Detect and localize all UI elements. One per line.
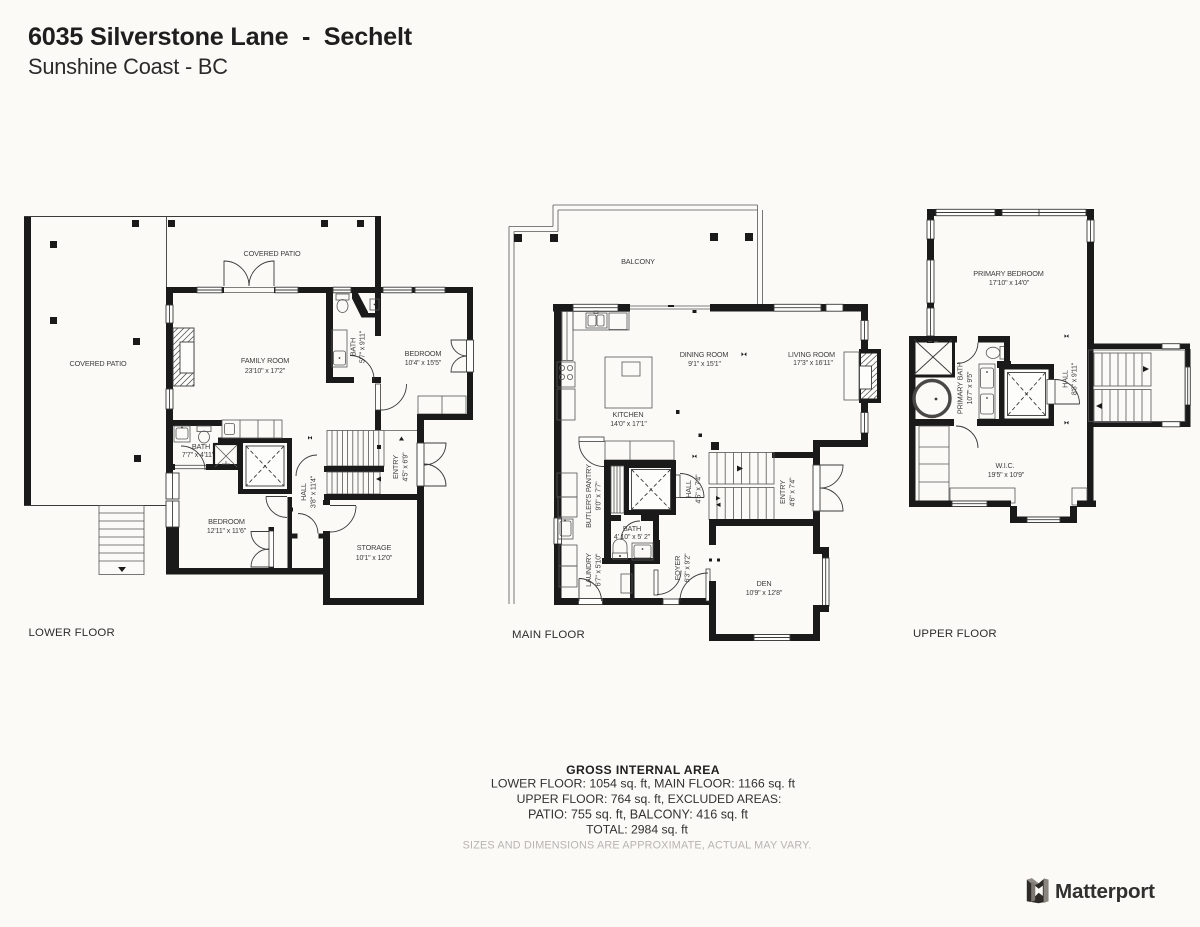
svg-text:10'1" x 12'0": 10'1" x 12'0" [356, 555, 393, 562]
svg-text:4'5" x 6'9": 4'5" x 6'9" [403, 452, 410, 482]
svg-text:BATH: BATH [623, 524, 641, 533]
svg-text:W.I.C.: W.I.C. [996, 461, 1015, 470]
svg-text:PATIO: 755 sq. ft, BALCONY: 41: PATIO: 755 sq. ft, BALCONY: 416 sq. ft [528, 808, 749, 822]
svg-text:6'7" x 5'10": 6'7" x 5'10" [596, 553, 603, 586]
svg-text:MAIN FLOOR: MAIN FLOOR [512, 629, 585, 641]
svg-text:17'3" x 16'11": 17'3" x 16'11" [793, 360, 833, 367]
svg-text:BEDROOM: BEDROOM [405, 349, 442, 358]
svg-text:Matterport: Matterport [1055, 880, 1155, 903]
svg-text:LIVING ROOM: LIVING ROOM [788, 350, 835, 359]
svg-text:PRIMARY BATH: PRIMARY BATH [956, 362, 965, 414]
svg-text:9'1" x 15'1": 9'1" x 15'1" [688, 361, 721, 368]
svg-text:9'0" x 7'7": 9'0" x 7'7" [596, 481, 603, 511]
svg-text:COVERED PATIO: COVERED PATIO [244, 249, 301, 258]
svg-text:KITCHEN: KITCHEN [613, 410, 644, 419]
svg-text:ENTRY: ENTRY [391, 455, 400, 479]
svg-text:BEDROOM: BEDROOM [208, 517, 245, 526]
svg-text:6'3" x 9'2": 6'3" x 9'2" [685, 553, 692, 583]
svg-text:GROSS INTERNAL AREA: GROSS INTERNAL AREA [566, 763, 720, 777]
svg-text:7'7" x 4'11": 7'7" x 4'11" [182, 452, 215, 459]
svg-text:23'10" x 17'2": 23'10" x 17'2" [245, 368, 286, 375]
svg-text:FAMILY ROOM: FAMILY ROOM [241, 356, 289, 365]
svg-text:6035 Silverstone Lane - Sech: 6035 Silverstone Lane - Sechelt [28, 23, 413, 51]
svg-text:8'8" x 9'11": 8'8" x 9'11" [1072, 362, 1079, 395]
svg-text:DINING ROOM: DINING ROOM [680, 350, 729, 359]
svg-text:LOWER FLOOR: 1054 sq. ft, MAIN: LOWER FLOOR: 1054 sq. ft, MAIN FLOOR: 11… [491, 777, 796, 791]
svg-text:UPPER FLOOR: 764 sq. ft, EXCLU: UPPER FLOOR: 764 sq. ft, EXCLUDED AREAS: [517, 792, 782, 806]
svg-text:LOWER FLOOR: LOWER FLOOR [29, 627, 115, 639]
svg-text:BATH: BATH [192, 442, 210, 451]
svg-text:10'4" x 15'5": 10'4" x 15'5" [405, 360, 442, 367]
svg-text:PRIMARY BEDROOM: PRIMARY BEDROOM [973, 269, 1044, 278]
svg-text:10'9" x 12'8": 10'9" x 12'8" [746, 590, 783, 597]
svg-text:HALL: HALL [299, 483, 308, 501]
svg-text:3'8" x 11'4": 3'8" x 11'4" [311, 475, 318, 508]
svg-text:STORAGE: STORAGE [357, 543, 392, 552]
svg-text:19'5" x 10'9": 19'5" x 10'9" [988, 472, 1025, 479]
svg-text:BATH: BATH [349, 338, 358, 356]
svg-text:10'7" x 9'5": 10'7" x 9'5" [967, 371, 974, 404]
svg-text:UPPER FLOOR: UPPER FLOOR [913, 628, 997, 640]
svg-text:TOTAL: 2984 sq. ft: TOTAL: 2984 sq. ft [586, 823, 688, 837]
svg-text:ENTRY: ENTRY [778, 480, 787, 504]
svg-text:4'6" x 7'4": 4'6" x 7'4" [790, 477, 797, 507]
svg-text:DEN: DEN [757, 579, 772, 588]
svg-text:BUTLER'S PANTRY: BUTLER'S PANTRY [584, 464, 593, 528]
svg-text:SIZES AND DIMENSIONS ARE APPRO: SIZES AND DIMENSIONS ARE APPROXIMATE, AC… [463, 840, 812, 852]
svg-text:COVERED PATIO: COVERED PATIO [70, 359, 127, 368]
svg-text:14'0" x 17'1": 14'0" x 17'1" [610, 421, 647, 428]
svg-text:4'5" x 7'4": 4'5" x 7'4" [696, 474, 703, 504]
svg-text:4' 10" x 5' 2": 4' 10" x 5' 2" [614, 534, 651, 541]
svg-text:Sunshine Coast - BC: Sunshine Coast - BC [28, 54, 228, 79]
svg-text:LAUNDRY: LAUNDRY [584, 553, 593, 587]
svg-text:FOYER: FOYER [673, 556, 682, 580]
svg-text:BALCONY: BALCONY [621, 257, 655, 266]
svg-text:12'11" x 11'6": 12'11" x 11'6" [207, 528, 247, 535]
svg-text:HALL: HALL [684, 480, 693, 498]
svg-text:HALL: HALL [1061, 370, 1070, 388]
svg-text:17'10" x 14'0": 17'10" x 14'0" [989, 280, 1030, 287]
